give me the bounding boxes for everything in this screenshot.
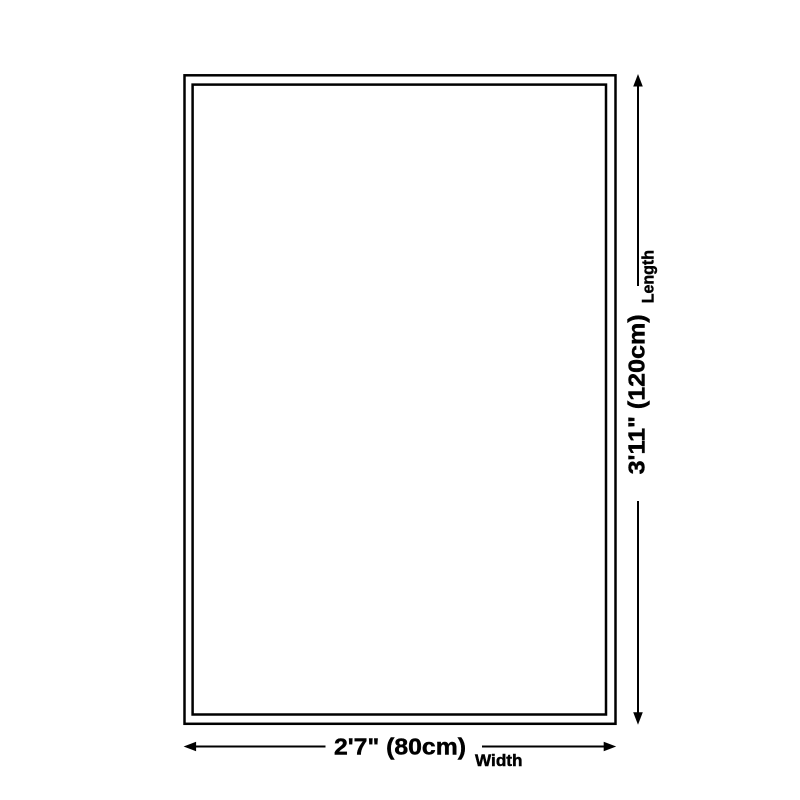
svg-text:2'7" (80cm): 2'7" (80cm) — [334, 733, 466, 759]
svg-text:Width: Width — [475, 752, 523, 770]
svg-text:3'11" (120cm): 3'11" (120cm) — [623, 314, 649, 474]
svg-text:Length: Length — [640, 250, 658, 303]
